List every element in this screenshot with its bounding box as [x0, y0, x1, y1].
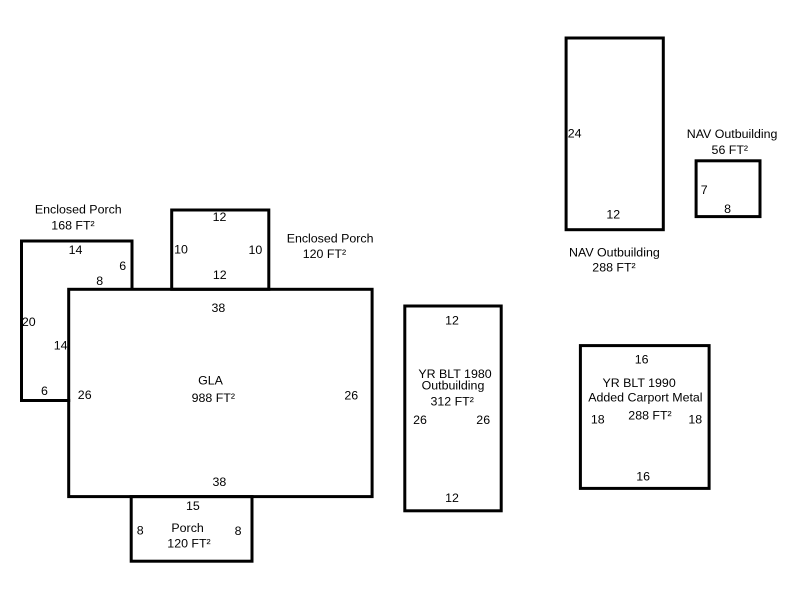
- svg-text:Enclosed Porch: Enclosed Porch: [35, 203, 122, 217]
- svg-text:Enclosed Porch: Enclosed Porch: [287, 232, 374, 246]
- svg-text:14: 14: [69, 243, 83, 257]
- svg-text:26: 26: [344, 389, 358, 403]
- svg-text:12: 12: [606, 208, 620, 222]
- svg-text:14: 14: [54, 339, 68, 353]
- svg-text:12: 12: [445, 313, 459, 327]
- svg-text:312 FT²: 312 FT²: [431, 394, 474, 408]
- svg-text:18: 18: [591, 412, 605, 426]
- svg-text:NAV Outbuilding: NAV Outbuilding: [569, 246, 660, 260]
- svg-text:20: 20: [22, 315, 36, 329]
- svg-text:8: 8: [724, 202, 731, 216]
- svg-text:18: 18: [688, 412, 702, 426]
- svg-text:120 FT²: 120 FT²: [303, 247, 346, 261]
- svg-text:15: 15: [186, 499, 200, 513]
- svg-text:288 FT²: 288 FT²: [628, 409, 671, 423]
- svg-text:38: 38: [213, 475, 227, 489]
- svg-text:24: 24: [568, 127, 582, 141]
- svg-text:8: 8: [235, 524, 242, 538]
- svg-text:988 FT²: 988 FT²: [192, 391, 235, 405]
- svg-text:YR BLT 1990: YR BLT 1990: [602, 376, 675, 390]
- svg-text:16: 16: [636, 469, 650, 483]
- svg-text:Added Carport Metal: Added Carport Metal: [588, 390, 702, 404]
- svg-text:NAV Outbuilding: NAV Outbuilding: [687, 127, 778, 141]
- svg-text:26: 26: [413, 413, 427, 427]
- svg-text:8: 8: [96, 274, 103, 288]
- svg-text:288 FT²: 288 FT²: [592, 260, 635, 274]
- svg-text:Outbuilding: Outbuilding: [422, 379, 485, 393]
- svg-text:8: 8: [137, 524, 144, 538]
- svg-text:12: 12: [213, 268, 227, 282]
- svg-text:38: 38: [212, 301, 226, 315]
- svg-text:168 FT²: 168 FT²: [51, 218, 94, 232]
- svg-text:120 FT²: 120 FT²: [167, 536, 210, 550]
- svg-text:16: 16: [635, 352, 649, 366]
- svg-text:10: 10: [174, 243, 188, 257]
- svg-text:GLA: GLA: [198, 374, 224, 388]
- svg-text:56 FT²: 56 FT²: [712, 143, 749, 157]
- svg-text:10: 10: [249, 243, 263, 257]
- svg-text:6: 6: [119, 259, 126, 273]
- svg-text:Porch: Porch: [171, 521, 203, 535]
- svg-text:26: 26: [476, 413, 490, 427]
- svg-text:26: 26: [78, 388, 92, 402]
- svg-text:12: 12: [213, 210, 227, 224]
- svg-text:7: 7: [701, 183, 708, 197]
- svg-text:12: 12: [445, 491, 459, 505]
- svg-text:6: 6: [41, 384, 48, 398]
